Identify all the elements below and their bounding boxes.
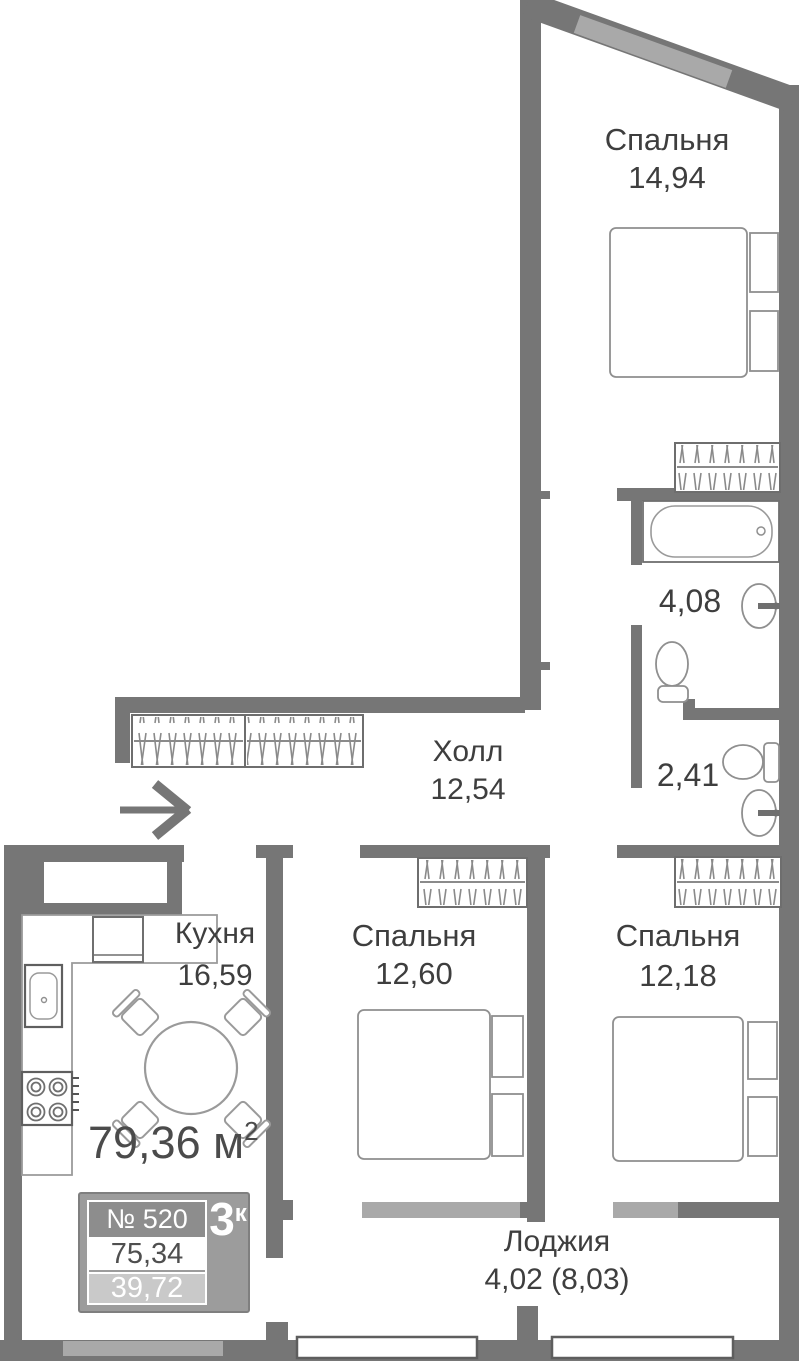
nightstand-icon [492,1016,523,1077]
apartment-secondary-area: 39,72 [89,1274,205,1303]
apartment-number: № 520 [89,1202,205,1237]
total-area-unit-sup: 2 [244,1116,258,1146]
wardrobe-hall-left-icon [132,715,245,767]
apartment-card: № 520 75,34 39,72 3к [78,1192,250,1313]
window-loggia-left-icon [297,1337,477,1358]
wardrobe-bedroom-right-icon [675,857,781,907]
wall-bedrooms-divider [527,845,545,1222]
room-area-wc: 2,41 [588,759,788,793]
total-area-value: 79,36 [88,1117,201,1168]
door-tick-icon [541,491,550,499]
room-area-bathroom: 4,08 [590,585,790,619]
wall-bathroom-left-upper [631,501,642,565]
window-diagonal-icon [577,24,729,79]
wall-loggia-right [678,1202,799,1218]
total-area-unit: м [201,1117,244,1168]
chair-icon [221,989,271,1039]
room-label-bedroom-top: Спальня [567,124,767,157]
toilet-bathroom-icon [656,642,688,702]
sink-wc-icon [742,790,780,836]
nightstand-icon [750,233,778,292]
apartment-card-values: № 520 75,34 39,72 [87,1200,207,1305]
wall-loggia-mid [517,1202,538,1218]
window-loggia-right-icon [552,1337,733,1358]
wall-shaft-bottom [44,903,182,915]
door-tick-icon [541,662,550,670]
window-bedroom-mid-loggia-icon [362,1202,520,1218]
bed-bedroom-mid-icon [358,1010,523,1159]
window-kitchen-icon [63,1341,223,1356]
bed-bedroom-top-icon [610,228,778,377]
nightstand-icon [492,1094,523,1156]
wall-outer-left-thick [4,845,44,915]
nightstand-icon [748,1097,777,1156]
apartment-rooms-count: 3к [207,1196,249,1242]
bed-bedroom-right-icon [613,1017,777,1161]
wall-loggia-bottom-stub [517,1306,538,1342]
wall-kitchen-bottom-stub [266,1322,288,1342]
wall-bedroom-mid-top [360,845,527,858]
wall-loggia-stub-left [282,1200,293,1220]
stove-icon [22,1072,79,1125]
wardrobe-hall-right-icon [245,715,363,767]
room-area-bedroom-right: 12,18 [578,960,778,993]
wall-bath-wc-divider [683,708,790,720]
wall-outer-left [4,915,22,1361]
room-area-loggia: 4,02 (8,03) [457,1264,657,1296]
room-area-bedroom-mid: 12,60 [314,958,514,991]
wall-diagonal-top [527,4,793,100]
room-label-loggia: Лоджия [457,1226,657,1258]
nightstand-icon [748,1022,777,1079]
entrance-arrow-icon [120,784,188,836]
room-label-kitchen: Кухня [115,918,315,950]
room-area-bedroom-top: 14,94 [567,162,767,195]
window-bedroom-right-loggia-icon [613,1202,678,1218]
apartment-living-area: 75,34 [89,1239,205,1272]
floor-plan: Спальня 14,94 Холл 12,54 4,08 2,41 Кухня… [0,0,799,1361]
chair-icon [112,989,162,1039]
room-label-bedroom-right: Спальня [578,920,778,953]
total-area: 79,36 м2 [88,1116,259,1169]
beds [358,228,778,1161]
wall-hall-top [115,697,525,713]
dining-table-icon [145,1022,237,1114]
wall-entrance-return [115,697,130,763]
kitchen-sink-icon [25,965,62,1027]
room-area-kitchen: 16,59 [115,960,315,992]
wall-outer-right [779,85,799,1361]
rooms-count-sup: к [235,1200,247,1227]
room-area-hall: 12,54 [368,774,568,806]
room-label-bedroom-mid: Спальня [314,920,514,953]
wall-bedroom-top-left [520,0,541,710]
room-label-hall: Холл [368,736,568,768]
wall-kitchen-bedroom-divider [266,856,283,1258]
nightstand-icon [750,311,778,371]
wardrobe-bedroom-top-icon [675,443,780,492]
bathtub-icon [643,501,779,562]
rooms-count-value: 3 [209,1193,235,1245]
wardrobe-bedroom-mid-icon [418,858,527,907]
